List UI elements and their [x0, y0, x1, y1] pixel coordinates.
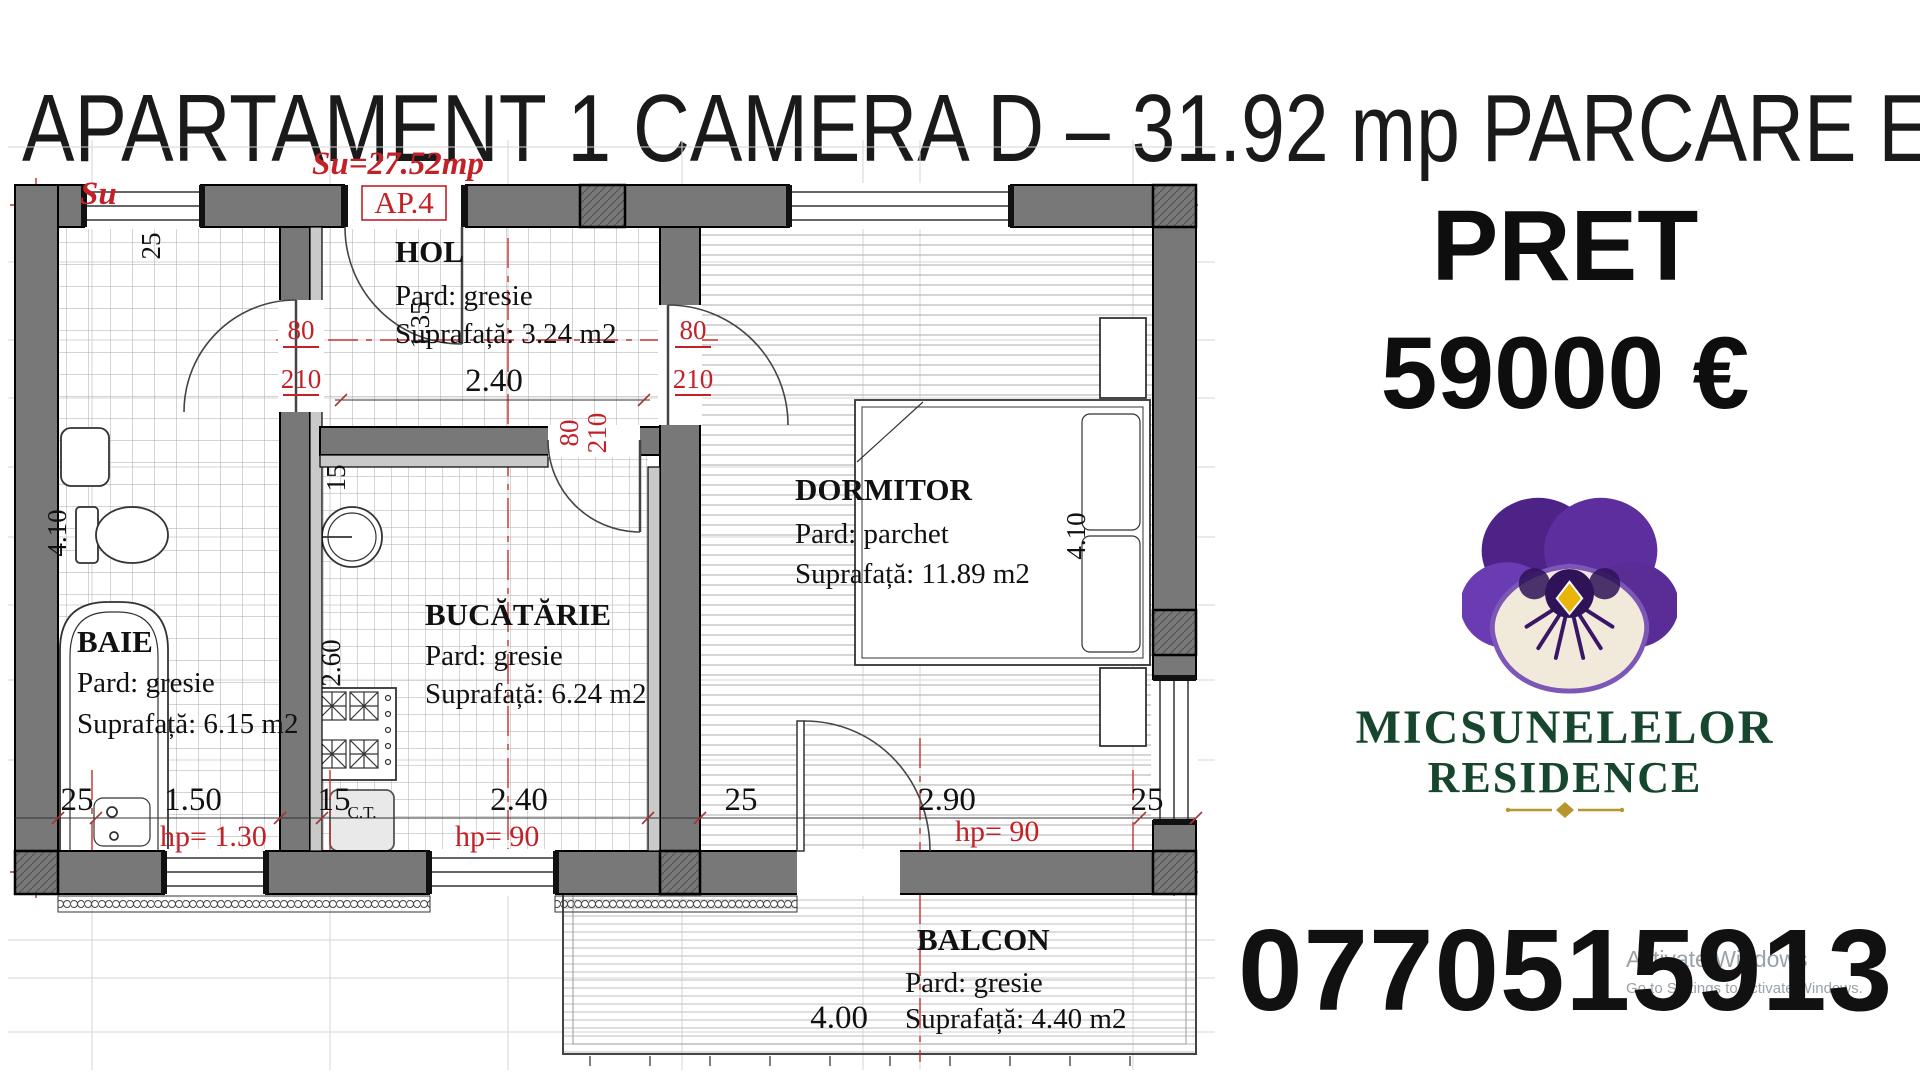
dim-135: 1.35 [405, 301, 435, 348]
insulation-bands [58, 896, 797, 912]
room-area-baie: Suprafață: 6.15 m2 [77, 708, 298, 740]
gold-ornament-icon [1500, 800, 1630, 820]
parapet-note-baie: hp= 1.30 [160, 820, 267, 853]
dim-b240: 2.40 [490, 782, 548, 818]
dim-b25b: 25 [725, 782, 758, 818]
dim-b290: 2.90 [918, 782, 976, 818]
dim-wall-25: 25 [136, 233, 166, 260]
usable-area-label: Su=27.52mp [312, 146, 484, 182]
room-floor-baie: Pard: gresie [77, 667, 215, 699]
dim-15-kitchen: 15 [321, 465, 351, 492]
pansy-flower-logo-icon [1462, 490, 1677, 695]
balcony-structure [563, 894, 1196, 1066]
dim-260: 2.60 [316, 639, 346, 686]
dim-door-80-right: 80 [680, 315, 707, 345]
brand-name-line2: RESIDENCE [1320, 752, 1810, 803]
apartment-number: AP.4 [374, 185, 434, 220]
dim-kitchen-door-210: 210 [582, 413, 612, 454]
room-name-baie: BAIE [77, 624, 153, 659]
dim-hol-width: 2.40 [465, 363, 523, 399]
toilet-bowl [96, 507, 168, 563]
dim-door-210-left: 210 [281, 364, 322, 394]
room-area-balcon: Suprafață: 4.40 m2 [905, 1003, 1126, 1035]
dim-door-80-left: 80 [288, 315, 315, 345]
dim-b15: 15 [318, 782, 351, 818]
nightstand [1100, 318, 1146, 398]
room-name-balcon: BALCON [917, 922, 1050, 957]
stove [314, 688, 396, 780]
room-floor-bucatarie: Pard: gresie [425, 640, 563, 672]
room-name-bucatarie: BUCĂTĂRIE [425, 597, 611, 632]
dim-b25c: 25 [1131, 782, 1164, 818]
nightstand [1100, 668, 1146, 746]
dim-kitchen-door-80: 80 [554, 420, 584, 447]
parapet-note-bucatarie: hp= 90 [455, 820, 539, 853]
dim-door-210-right: 210 [673, 364, 714, 394]
bathroom-sink [61, 428, 109, 486]
flyer-page: APARTAMENT 1 CAMERA D – 31.92 mp PARCARE… [0, 0, 1920, 1080]
boiler-label: C.T. [348, 803, 377, 822]
price-value: 59000 € [1290, 322, 1840, 424]
su-fragment: Su [80, 176, 117, 212]
parapet-note-dormitor: hp= 90 [955, 815, 1039, 848]
price-label: PRET [1330, 196, 1800, 296]
toilet-tank [76, 507, 98, 563]
room-name-hol: HOL [395, 234, 464, 269]
room-floor-dormitor: Pard: parchet [795, 518, 949, 550]
dim-410-dormitor: 4.10 [1061, 512, 1091, 559]
dim-410-baie: 4.10 [42, 509, 72, 556]
dim-b25a: 25 [61, 782, 94, 818]
dim-b150: 1.50 [164, 782, 222, 818]
room-area-bucatarie: Suprafață: 6.24 m2 [425, 678, 646, 710]
dim-balcon-width: 4.00 [810, 1000, 868, 1036]
brand-name-line1: MICSUNELELOR [1320, 700, 1810, 755]
room-floor-balcon: Pard: gresie [905, 967, 1043, 999]
phone-number: 0770515913 [1238, 912, 1893, 1028]
room-area-dormitor: Suprafață: 11.89 m2 [795, 558, 1030, 590]
room-name-dormitor: DORMITOR [795, 472, 972, 507]
